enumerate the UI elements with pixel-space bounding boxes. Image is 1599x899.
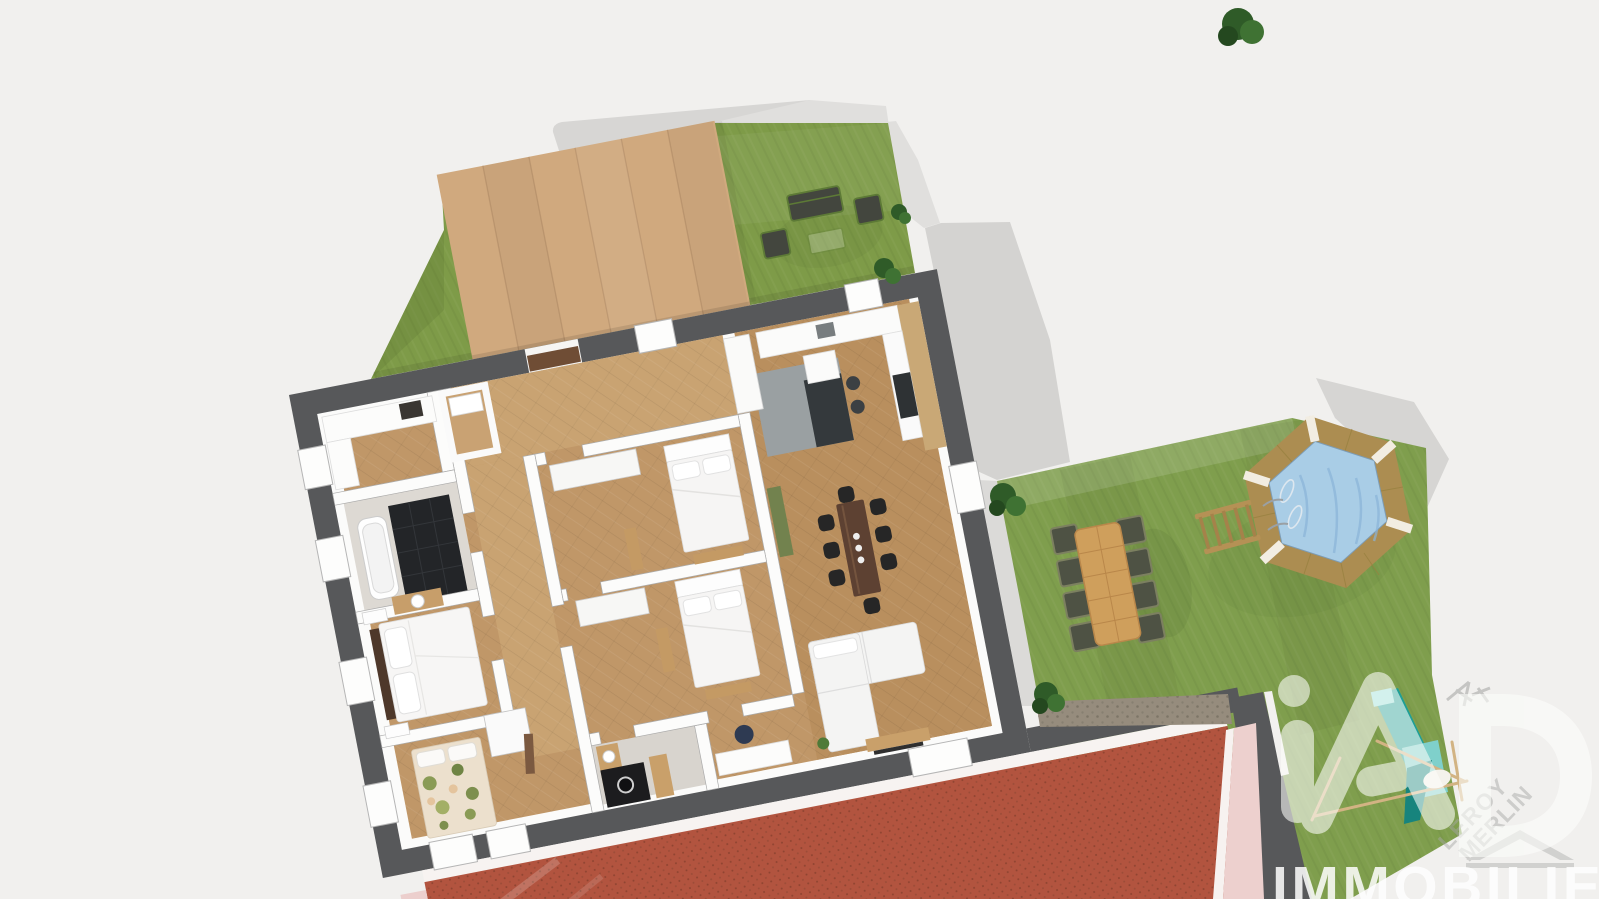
svg-text:IMMOBILIER: IMMOBILIER (1272, 855, 1599, 899)
